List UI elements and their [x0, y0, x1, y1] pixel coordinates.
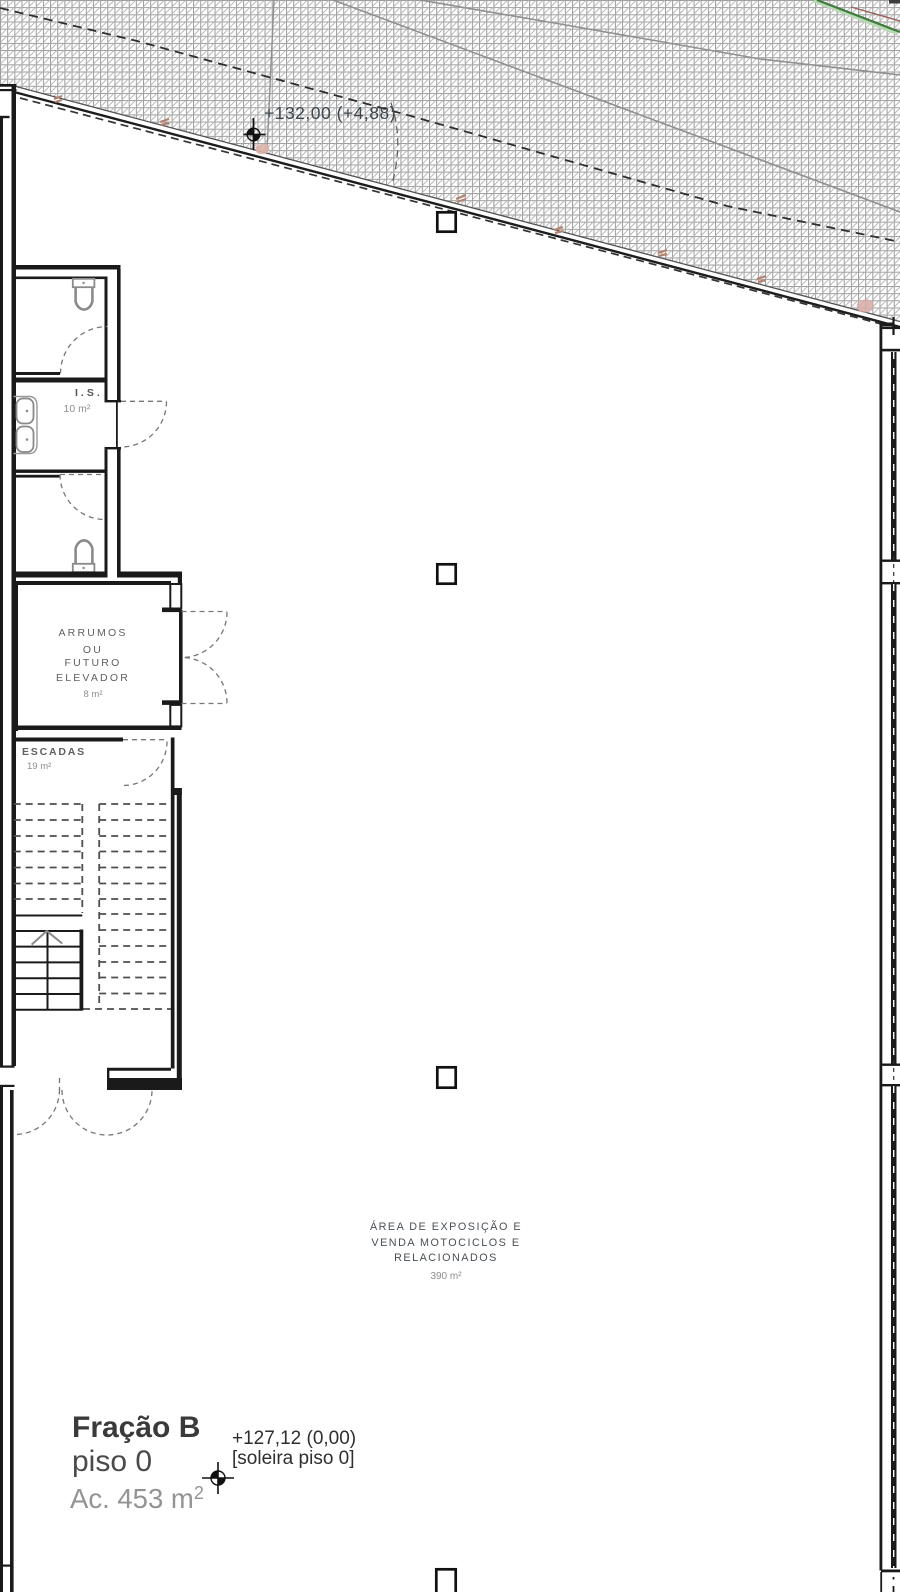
svg-text:I.S.: I.S.	[75, 387, 103, 399]
svg-text:19 m²: 19 m²	[27, 761, 51, 772]
svg-text:390 m²: 390 m²	[430, 1271, 462, 1282]
svg-text:ELEVADOR: ELEVADOR	[56, 672, 130, 684]
svg-text:FUTURO: FUTURO	[65, 657, 122, 669]
svg-text:Fração B: Fração B	[72, 1411, 200, 1444]
svg-text:10 m²: 10 m²	[64, 403, 91, 415]
svg-text:RELACIONADOS: RELACIONADOS	[394, 1252, 498, 1264]
svg-text:ARRUMOS: ARRUMOS	[58, 627, 127, 639]
svg-text:+132,00 (+4,88): +132,00 (+4,88)	[264, 103, 396, 123]
svg-text:+127,12 (0,00): +127,12 (0,00)	[232, 1428, 356, 1449]
svg-text:VENDA MOTOCICLOS E: VENDA MOTOCICLOS E	[371, 1237, 520, 1249]
svg-text:Ac. 453 m2: Ac. 453 m2	[70, 1483, 204, 1514]
svg-text:piso 0: piso 0	[72, 1445, 152, 1478]
svg-text:ÁREA DE EXPOSIÇÃO E: ÁREA DE EXPOSIÇÃO E	[370, 1220, 522, 1233]
svg-text:[soleira piso 0]: [soleira piso 0]	[232, 1448, 355, 1469]
svg-text:8 m²: 8 m²	[84, 689, 103, 700]
svg-text:ESCADAS: ESCADAS	[22, 746, 86, 758]
svg-text:OU: OU	[83, 644, 103, 656]
